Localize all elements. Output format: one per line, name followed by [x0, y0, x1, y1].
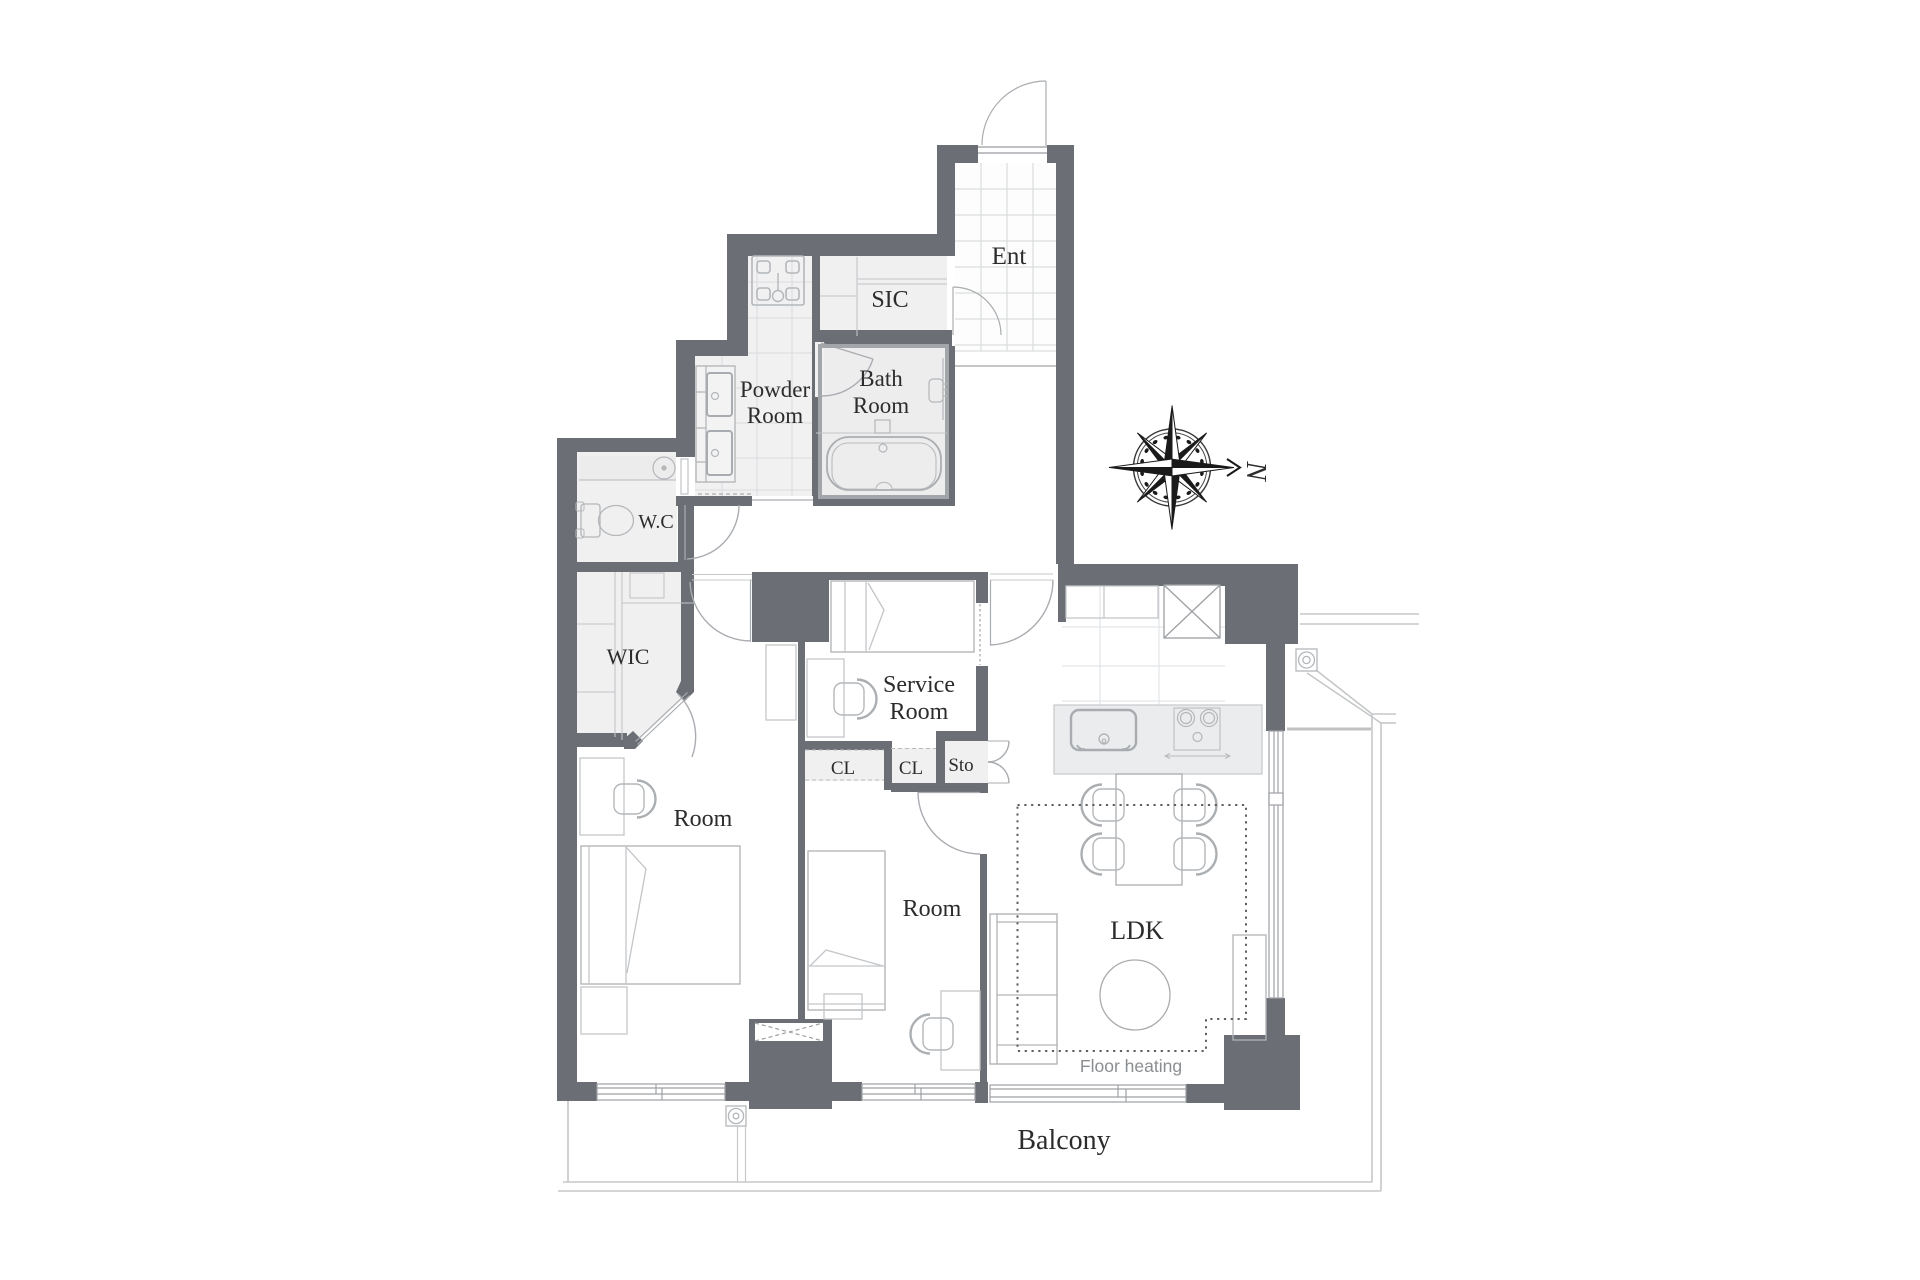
- svg-text:SIC: SIC: [871, 287, 908, 313]
- svg-text:Bath: Bath: [859, 366, 903, 391]
- svg-text:Room: Room: [903, 896, 962, 922]
- svg-text:Balcony: Balcony: [1017, 1125, 1110, 1156]
- svg-text:Room: Room: [890, 699, 949, 725]
- svg-text:WIC: WIC: [607, 644, 650, 669]
- svg-text:CL: CL: [831, 758, 855, 779]
- svg-text:Powder: Powder: [740, 377, 811, 402]
- svg-text:Ent: Ent: [992, 243, 1027, 270]
- svg-text:W.C: W.C: [638, 511, 673, 533]
- svg-text:N: N: [1240, 460, 1272, 482]
- svg-text:Sto: Sto: [948, 755, 973, 776]
- svg-text:LDK: LDK: [1110, 916, 1164, 945]
- svg-text:Service: Service: [883, 672, 955, 698]
- svg-text:Room: Room: [674, 806, 733, 832]
- svg-text:Room: Room: [853, 393, 909, 418]
- svg-text:Room: Room: [747, 403, 803, 428]
- svg-text:CL: CL: [899, 758, 923, 779]
- svg-text:Floor heating: Floor heating: [1080, 1056, 1182, 1076]
